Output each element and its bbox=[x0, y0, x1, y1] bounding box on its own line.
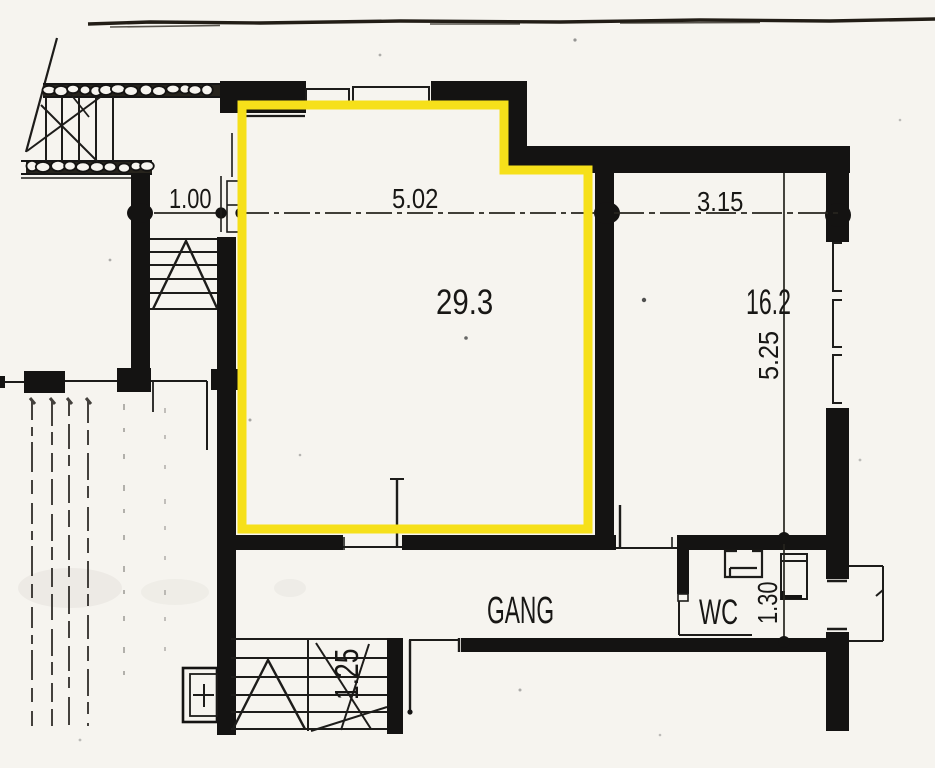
svg-text:29.3: 29.3 bbox=[436, 283, 493, 322]
svg-text:16.2: 16.2 bbox=[746, 283, 791, 322]
svg-text:3.15: 3.15 bbox=[697, 185, 743, 217]
svg-text:GANG: GANG bbox=[487, 589, 554, 631]
svg-text:5.02: 5.02 bbox=[392, 182, 438, 214]
svg-text:1.00: 1.00 bbox=[169, 183, 211, 214]
svg-text:5.25: 5.25 bbox=[753, 331, 785, 380]
svg-text:1.30: 1.30 bbox=[752, 582, 783, 624]
svg-text:1.25: 1.25 bbox=[329, 649, 365, 700]
svg-text:WC: WC bbox=[699, 593, 738, 632]
